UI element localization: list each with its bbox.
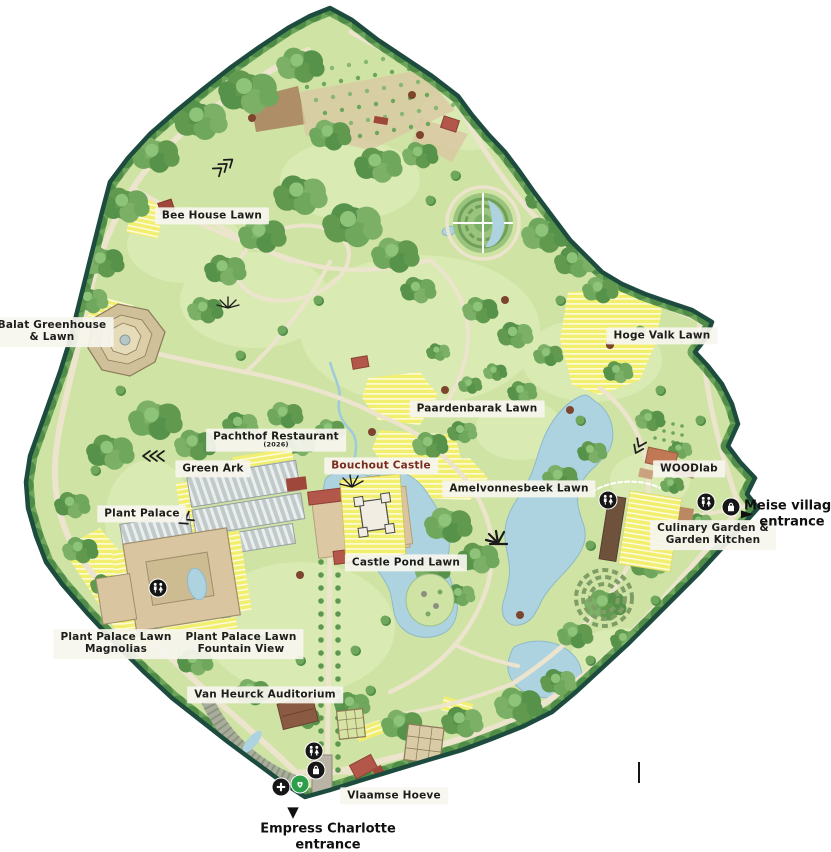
empress-charlotte-entrance-label: Empress Charlotteentrance — [260, 821, 396, 852]
toilets-icon — [305, 742, 324, 761]
label-woodlab: WOODlab — [653, 460, 725, 477]
empress-entrance-arrow-icon: ▼ — [287, 803, 299, 821]
label-van-heurck-auditorium: Van Heurck Auditorium — [187, 686, 343, 703]
map-illustration — [0, 0, 831, 852]
label-plant-palace-lawn-fountain-view: Plant Palace LawnFountain View — [178, 629, 303, 659]
label-balat-greenhouse-lawn: Balat Greenhouse& Lawn — [0, 317, 113, 347]
label-bouchout-castle: Bouchout Castle — [324, 457, 438, 474]
meise-village-entrance-label: Meise villageentrance — [744, 498, 831, 529]
label-pachthof-restaurant: Pachthof Restaurant(2026) — [206, 429, 346, 452]
toilets-icon — [149, 579, 168, 598]
label-green-ark: Green Ark — [175, 460, 250, 477]
label-bee-house-lawn: Bee House Lawn — [155, 207, 269, 224]
circular-maze-garden — [453, 193, 513, 253]
toilets-icon — [599, 491, 618, 510]
shop-bag-icon — [307, 761, 326, 780]
shop-bag-icon — [722, 498, 741, 517]
label-paardenbarak-lawn: Paardenbarak Lawn — [410, 400, 545, 417]
aed-icon — [291, 775, 310, 794]
stray-mark — [638, 762, 640, 783]
botanic-garden-map: Bee House Lawn Balat Greenhouse& Lawn Ho… — [0, 0, 831, 852]
label-plant-palace: Plant Palace — [97, 505, 186, 522]
label-amelvonnesbeek-lawn: Amelvonnesbeek Lawn — [442, 480, 595, 497]
label-plant-palace-lawn-magnolias: Plant Palace LawnMagnolias — [53, 629, 178, 659]
label-castle-pond-lawn: Castle Pond Lawn — [345, 554, 467, 571]
label-hoge-valk-lawn: Hoge Valk Lawn — [607, 327, 718, 344]
toilets-icon — [697, 493, 716, 512]
first-aid-icon — [272, 778, 291, 797]
label-vlaamse-hoeve: Vlaamse Hoeve — [340, 787, 448, 804]
